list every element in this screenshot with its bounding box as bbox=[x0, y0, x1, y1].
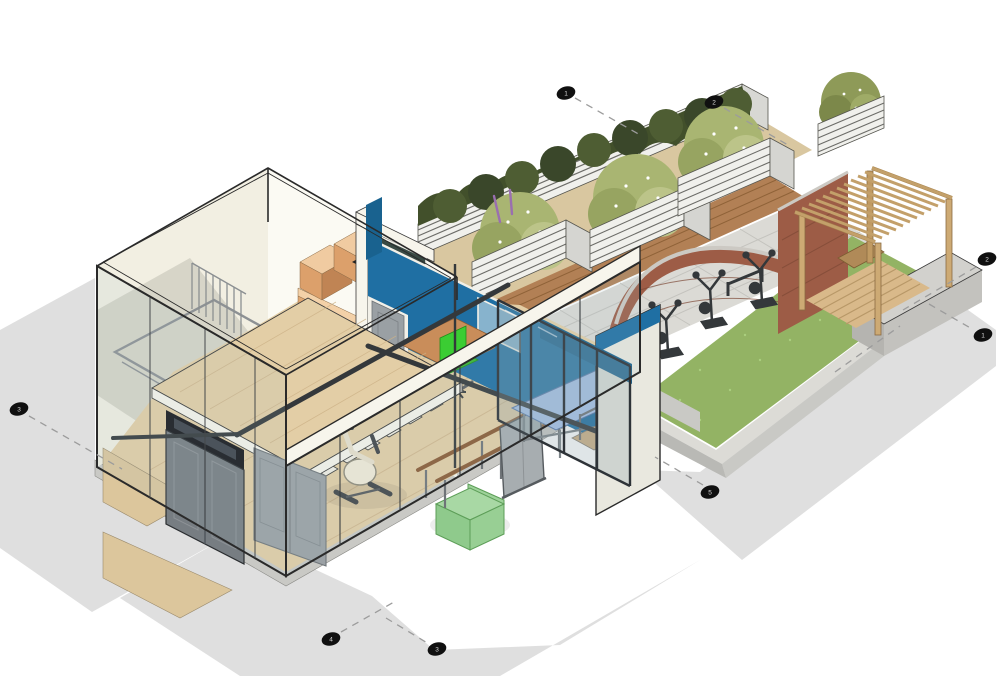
grid-marker-label: 2 bbox=[985, 256, 989, 263]
grid-line bbox=[575, 98, 642, 136]
axon-view-canvas: 1 2 2 1 5 3 4 3 bbox=[0, 0, 1000, 676]
tree-planter bbox=[818, 72, 884, 156]
grid-marker-label: 5 bbox=[708, 489, 712, 496]
grid-marker-label: 1 bbox=[564, 90, 568, 97]
architectural-3d-view: 1 2 2 1 5 3 4 3 bbox=[0, 0, 1000, 676]
grid-marker-label: 2 bbox=[712, 99, 716, 106]
grid-marker: 2 bbox=[976, 250, 998, 268]
grid-marker-label: 3 bbox=[17, 406, 21, 413]
grid-marker-label: 3 bbox=[435, 646, 439, 653]
grid-marker-label: 4 bbox=[329, 636, 333, 643]
grid-marker: 1 bbox=[555, 84, 577, 102]
grid-marker-label: 1 bbox=[981, 332, 985, 339]
